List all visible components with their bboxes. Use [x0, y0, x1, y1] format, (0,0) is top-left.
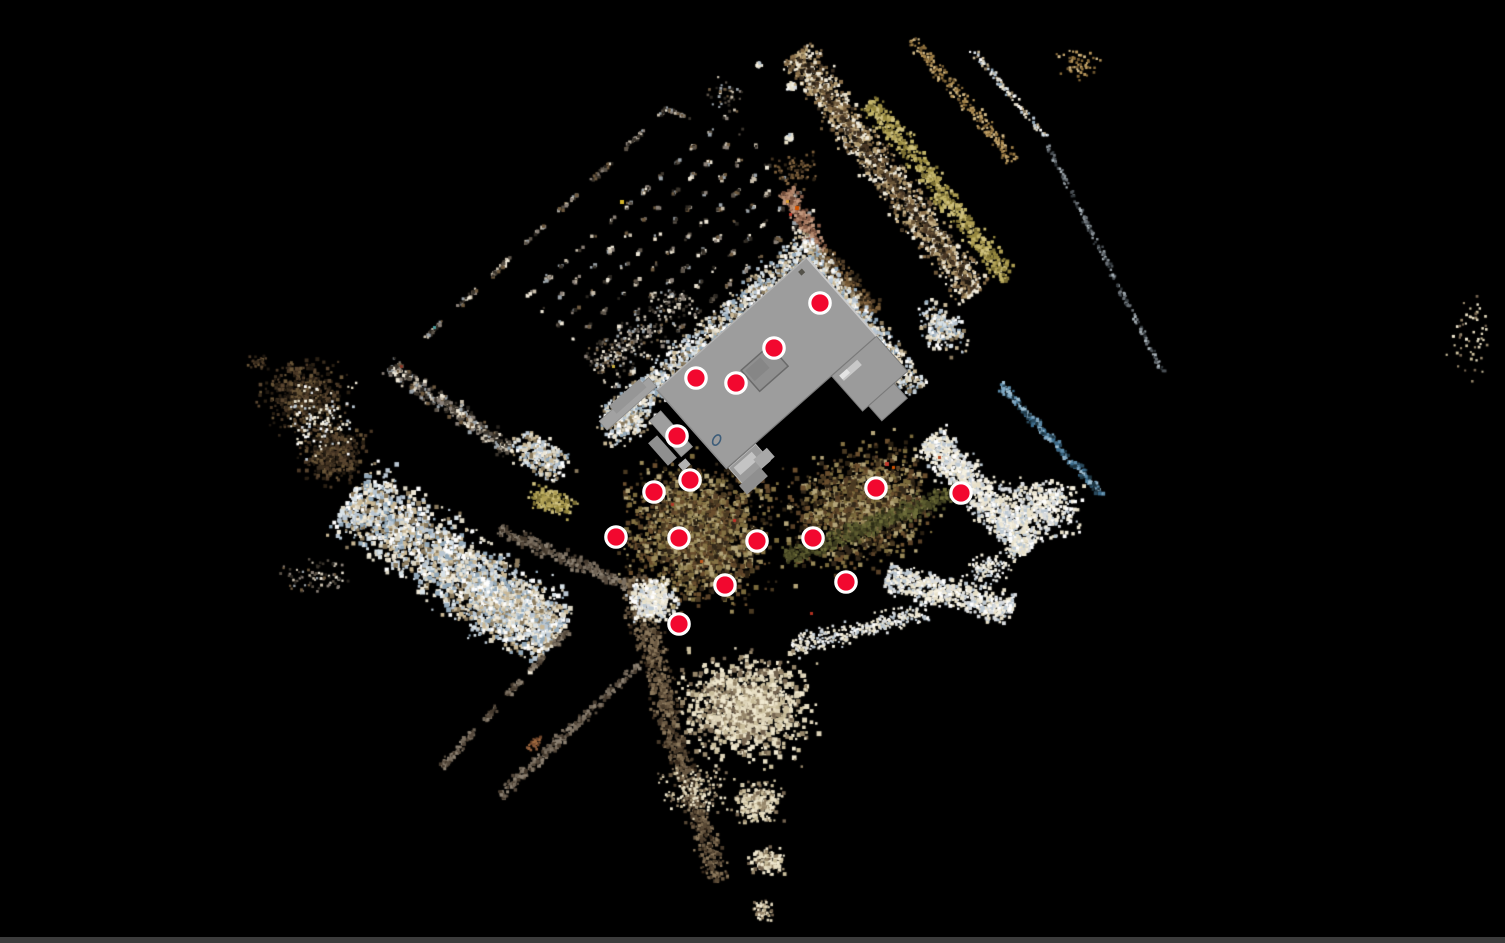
window-bottom-edge — [0, 937, 1505, 943]
scan-position-marker[interactable] — [747, 531, 767, 551]
scan-position-marker[interactable] — [669, 614, 689, 634]
pointcloud-viewport[interactable] — [0, 0, 1505, 943]
scan-position-marker[interactable] — [606, 527, 626, 547]
walkway-nw — [599, 377, 656, 430]
scan-position-marker[interactable] — [669, 528, 689, 548]
scan-position-marker[interactable] — [726, 373, 746, 393]
scan-position-marker[interactable] — [951, 483, 971, 503]
scan-position-marker[interactable] — [803, 528, 823, 548]
model-overlay — [0, 0, 1505, 943]
scan-position-marker[interactable] — [715, 575, 735, 595]
scan-position-marker[interactable] — [836, 572, 856, 592]
scan-position-marker[interactable] — [667, 426, 687, 446]
scan-position-marker[interactable] — [644, 482, 664, 502]
scan-position-marker[interactable] — [810, 293, 830, 313]
scan-position-marker[interactable] — [866, 478, 886, 498]
building-model[interactable] — [596, 242, 921, 561]
scan-position-marker[interactable] — [764, 338, 784, 358]
scan-position-marker[interactable] — [680, 470, 700, 490]
scan-position-marker[interactable] — [686, 368, 706, 388]
